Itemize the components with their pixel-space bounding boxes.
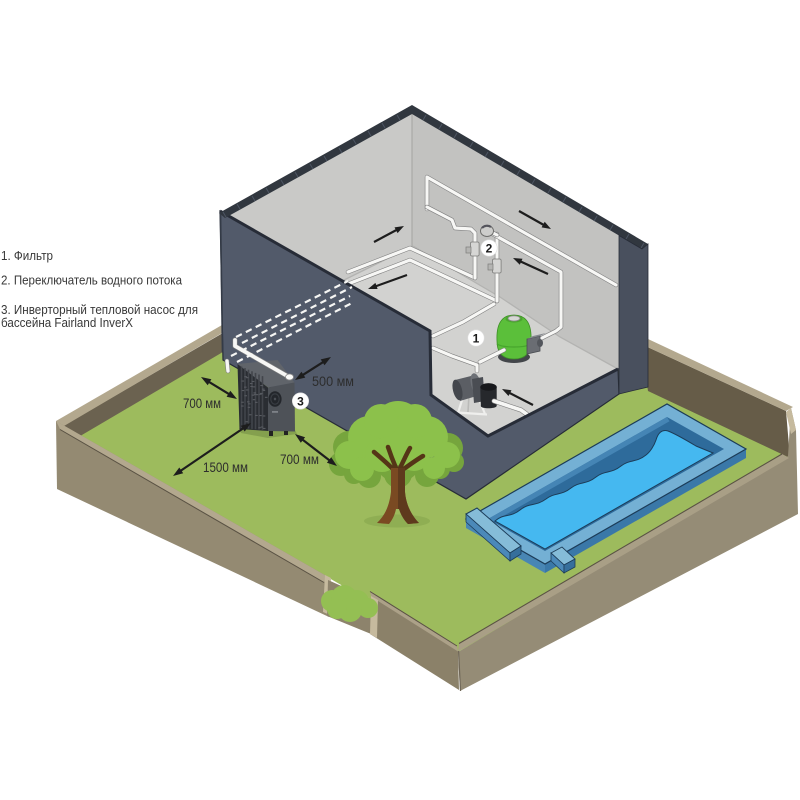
svg-text:1. Фильтр: 1. Фильтр [1,248,53,263]
svg-text:700 мм: 700 мм [183,395,221,411]
svg-text:2: 2 [486,241,493,255]
svg-text:500 мм: 500 мм [312,373,354,389]
svg-text:3: 3 [297,394,304,408]
svg-text:1500 мм: 1500 мм [203,459,248,475]
svg-text:1: 1 [473,331,480,345]
svg-text:2. Переключатель водного поток: 2. Переключатель водного потока [1,273,183,288]
svg-text:бассейна Fairland InverX: бассейна Fairland InverX [1,315,133,330]
svg-text:700 мм: 700 мм [280,451,319,467]
